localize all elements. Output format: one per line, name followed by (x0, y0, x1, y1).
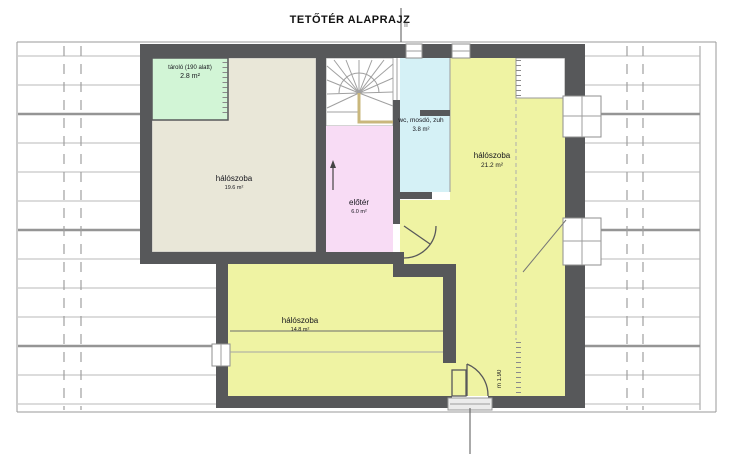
room-label-bath: wc, mosdó, zuh 3.8 m² (398, 117, 443, 134)
section-mark: II (404, 22, 408, 29)
room-area: 3.8 m² (398, 126, 443, 134)
room-name: tároló (190 alatt) (168, 64, 212, 72)
room-name: hálószoba (282, 316, 318, 327)
room-area: 21.2 m² (474, 162, 510, 171)
page-title: TETŐTÉR ALAPRAJZ (290, 14, 411, 26)
room-name: előtér (349, 198, 369, 209)
floorplan-drawing (0, 0, 730, 456)
room-area: 19.6 m² (216, 185, 252, 192)
floorplan-page: TETŐTÉR ALAPRAJZ II tároló (190 alatt) 2… (0, 0, 730, 456)
room-area: 6.0 m² (349, 209, 369, 216)
room-label-bedroom-nw: hálószoba 19.6 m² (216, 174, 252, 192)
room-name: wc, mosdó, zuh (398, 117, 443, 126)
room-label-hall: előtér 6.0 m² (349, 198, 369, 216)
height-marker-label: m 1.90 (497, 352, 503, 388)
room-hall (326, 126, 393, 252)
room-area: 14.8 m² (282, 327, 318, 334)
room-label-bedroom-e: hálószoba 21.2 m² (474, 151, 510, 171)
room-name: hálószoba (216, 174, 252, 185)
room-bedroom-s (228, 264, 450, 396)
room-name: hálószoba (474, 151, 510, 162)
room-label-storage: tároló (190 alatt) 2.8 m² (168, 64, 212, 82)
room-label-bedroom-s: hálószoba 14.8 m² (282, 316, 318, 334)
door-hall-opening (393, 224, 400, 252)
room-area: 2.8 m² (168, 72, 212, 81)
room-bedroom-e (450, 58, 565, 396)
low-ceiling-inset (516, 58, 565, 98)
